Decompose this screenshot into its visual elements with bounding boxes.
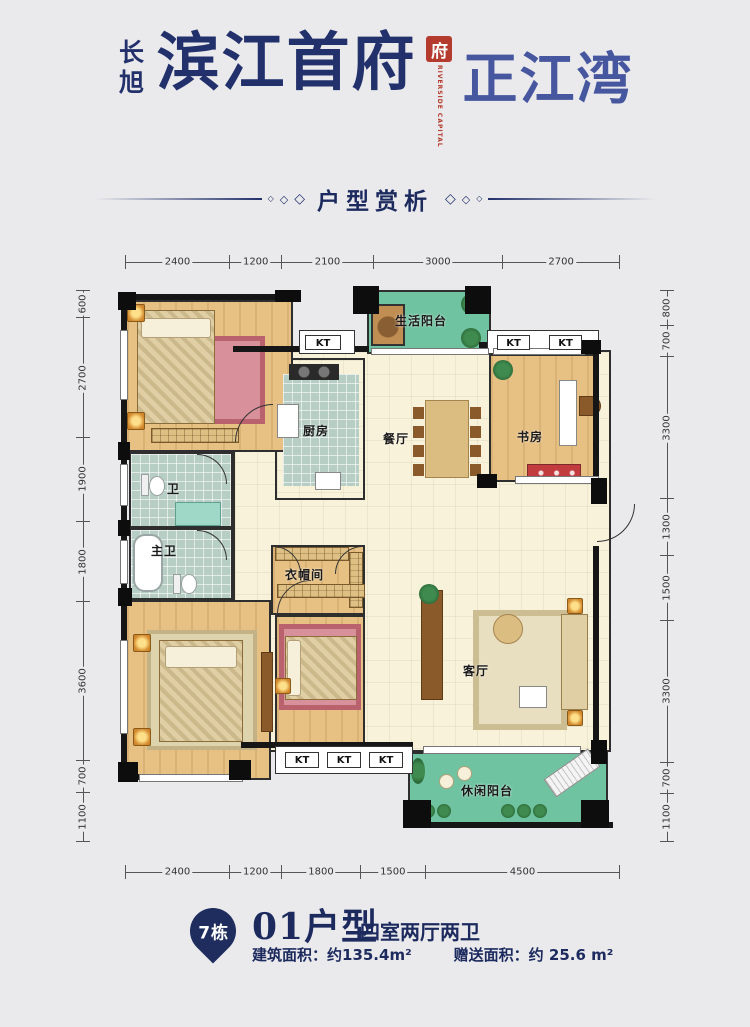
label-dining: 餐厅	[383, 430, 409, 447]
dimension-ruler-right: 80070033001300150033007001100	[660, 290, 674, 842]
vanity	[175, 502, 221, 526]
window	[120, 640, 128, 734]
kt-unit: KT	[497, 335, 530, 350]
stove	[289, 364, 339, 380]
dim-value: 1200	[241, 257, 270, 268]
dim-segment: 700	[660, 762, 674, 793]
plant	[533, 804, 547, 818]
dim-segment: 4500	[425, 865, 620, 879]
pillar	[275, 290, 301, 302]
dimension-ruler-bottom: 24001200180015004500	[125, 865, 620, 879]
divider-line	[488, 198, 655, 200]
plant	[411, 758, 425, 784]
wall	[121, 294, 301, 300]
divider-line	[95, 198, 262, 200]
plant	[437, 804, 451, 818]
dim-value: 600	[78, 293, 89, 316]
toilet	[181, 574, 197, 594]
toilet-tank	[141, 474, 149, 496]
label-master-bath: 主卫	[151, 542, 177, 559]
dining-chairs	[413, 402, 424, 476]
dim-value: 1500	[662, 573, 673, 602]
label-study: 书房	[517, 428, 543, 445]
gift-area: 赠送面积：约 25.6 m²	[454, 944, 614, 965]
sliding-door	[423, 746, 581, 754]
dim-segment: 800	[660, 290, 674, 325]
entry-door-arc	[597, 504, 635, 542]
dim-segment: 2700	[76, 317, 90, 436]
nightstand-lamp	[133, 728, 151, 746]
pillar	[477, 474, 497, 488]
dim-value: 700	[662, 766, 673, 789]
dim-value: 700	[78, 765, 89, 788]
kt-unit: KT	[305, 335, 341, 350]
dim-segment: 1200	[229, 255, 281, 269]
dresser	[151, 428, 239, 443]
dim-segment: 600	[76, 290, 90, 317]
plant	[517, 804, 531, 818]
dim-segment: 1100	[76, 792, 90, 842]
dim-value: 1100	[78, 802, 89, 831]
window	[139, 774, 243, 782]
dim-value: 3000	[423, 257, 452, 268]
kt-unit: KT	[549, 335, 582, 350]
diamond-icon: ◇	[445, 192, 456, 206]
nightstand-lamp	[127, 412, 145, 430]
sliding-door	[371, 348, 489, 355]
dim-segment: 1100	[660, 793, 674, 842]
built-area: 建筑面积：约135.4m²	[252, 944, 412, 965]
dim-segment: 3600	[76, 601, 90, 760]
dim-segment: 1300	[660, 498, 674, 555]
round-table	[493, 614, 523, 644]
pillow	[165, 646, 237, 668]
dim-value: 700	[662, 330, 673, 353]
dim-value: 2700	[546, 257, 575, 268]
kt-unit: KT	[327, 752, 361, 768]
label-leisure-balcony: 休闲阳台	[461, 782, 513, 799]
nightstand-lamp	[133, 634, 151, 652]
dim-value: 1200	[241, 867, 270, 878]
window	[120, 540, 128, 584]
brand-seal: 府 RIVERSIDE CAPITAL	[426, 36, 452, 148]
dim-value: 2100	[313, 257, 342, 268]
dim-segment: 1800	[281, 865, 359, 879]
dim-value: 1100	[662, 803, 673, 832]
pillar	[118, 588, 132, 606]
plant	[461, 328, 481, 348]
section-divider: ◇ ◇ ◇ 户型赏析 ◇ ◇ ◇	[95, 186, 655, 212]
dim-segment: 1800	[76, 521, 90, 601]
dim-segment: 2700	[502, 255, 620, 269]
project-title: 滨江首府	[156, 26, 416, 98]
pillar	[591, 740, 607, 764]
brand-header: 长旭 滨江首府 府 RIVERSIDE CAPITAL 正江湾	[0, 26, 750, 148]
pillar	[353, 286, 379, 314]
pillar	[118, 442, 130, 460]
dim-segment: 700	[660, 325, 674, 356]
diamond-icon: ◇	[294, 192, 305, 206]
nightstand-lamp	[275, 678, 291, 694]
dim-segment: 1500	[660, 555, 674, 620]
pillar	[118, 520, 130, 536]
toilet	[149, 476, 165, 496]
diamond-icon: ◇	[268, 195, 274, 203]
diamond-icon: ◇	[280, 194, 288, 205]
diamond-icon: ◇	[476, 195, 482, 203]
diamond-icon: ◇	[462, 194, 470, 205]
label-living: 客厅	[463, 662, 489, 679]
dim-segment: 700	[76, 760, 90, 792]
section-title: 户型赏析	[317, 182, 433, 216]
dim-segment: 3000	[373, 255, 503, 269]
dining-chairs	[470, 402, 481, 476]
pillar	[581, 340, 601, 354]
kt-unit: KT	[285, 752, 319, 768]
plant	[501, 804, 515, 818]
dim-segment: 2100	[281, 255, 372, 269]
label-kitchen: 厨房	[303, 422, 329, 439]
dim-segment: 2400	[125, 255, 229, 269]
kt-unit: KT	[369, 752, 403, 768]
pillar	[581, 800, 609, 828]
dim-value: 4500	[508, 867, 537, 878]
dim-segment: 1900	[76, 437, 90, 521]
dim-value: 1900	[78, 465, 89, 494]
balcony-chair	[439, 774, 454, 789]
dim-segment: 3300	[660, 356, 674, 498]
plant	[493, 360, 513, 380]
dim-value: 1300	[662, 512, 673, 541]
window	[120, 464, 128, 506]
wall	[593, 546, 599, 750]
dining-table	[425, 400, 469, 478]
dim-value: 3300	[662, 677, 673, 706]
pillar	[465, 286, 491, 314]
pillar	[591, 478, 607, 504]
dim-value: 3300	[662, 413, 673, 442]
fridge	[277, 404, 299, 438]
dim-value: 1500	[378, 867, 407, 878]
dim-segment: 1500	[360, 865, 425, 879]
building-badge: 7栋	[180, 898, 245, 963]
balcony-chair	[457, 766, 472, 781]
pillar	[118, 762, 138, 782]
label-bath: 卫	[167, 480, 180, 497]
dim-segment: 1200	[229, 865, 281, 879]
toilet-tank	[173, 574, 181, 594]
window	[120, 330, 128, 400]
pillow	[141, 318, 211, 338]
dim-segment: 3300	[660, 620, 674, 762]
dim-value: 2400	[163, 257, 192, 268]
unit-layout: 四室两厅两卫	[360, 916, 480, 945]
seal-character: 府	[426, 36, 452, 62]
building-badge-text: 7栋	[198, 919, 229, 944]
pillar	[403, 800, 431, 828]
dim-value: 800	[662, 297, 673, 320]
sofa	[561, 614, 588, 710]
corner-lamp	[567, 598, 583, 614]
window	[515, 476, 599, 484]
pillar	[118, 292, 136, 310]
project-subtitle: 正江湾	[462, 34, 633, 114]
dimension-ruler-left: 60027001900180036007001100	[76, 290, 90, 842]
label-cloakroom: 衣帽间	[285, 566, 324, 583]
dim-value: 2400	[163, 867, 192, 878]
label-life-balcony: 生活阳台	[395, 312, 447, 329]
brand-name-vertical: 长旭	[116, 38, 146, 98]
plant	[419, 584, 439, 604]
page: 长旭 滨江首府 府 RIVERSIDE CAPITAL 正江湾 ◇ ◇ ◇ 户型…	[0, 0, 750, 1027]
dim-value: 2700	[78, 363, 89, 392]
side-table	[519, 686, 547, 708]
desk	[261, 652, 273, 732]
dimension-ruler-top: 24001200210030002700	[125, 255, 620, 269]
dim-value: 1800	[78, 547, 89, 576]
pillar	[229, 760, 251, 780]
floor-plan: KT KT KT KT KT KT	[125, 290, 620, 840]
dim-segment: 2400	[125, 865, 229, 879]
kitchen-mat	[315, 472, 341, 490]
seal-caption: RIVERSIDE CAPITAL	[436, 65, 443, 148]
corner-lamp	[567, 710, 583, 726]
desk	[559, 380, 577, 446]
dim-value: 3600	[78, 666, 89, 695]
tv-cabinet	[421, 590, 443, 700]
dim-value: 1800	[306, 867, 335, 878]
area-info: 建筑面积：约135.4m² 赠送面积：约 25.6 m²	[252, 944, 613, 965]
